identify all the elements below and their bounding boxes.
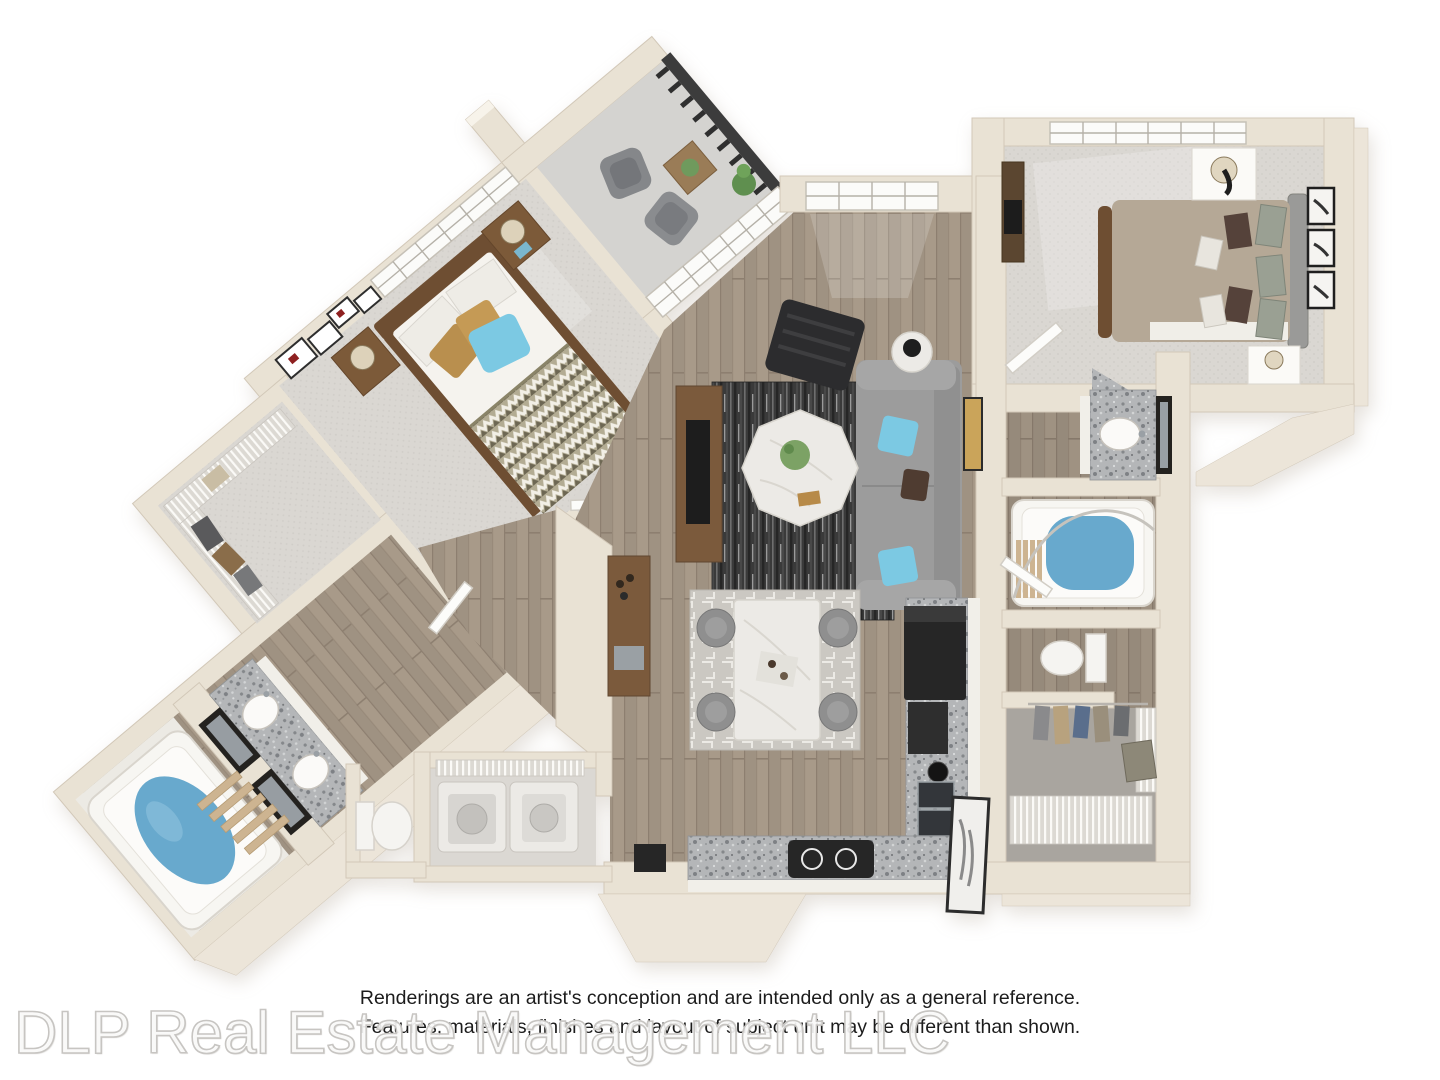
toilet-master <box>356 802 412 850</box>
bedroom-art-frames <box>1308 188 1334 308</box>
bath-divider-3 <box>1002 692 1114 708</box>
bedroom-media-unit <box>1002 162 1024 262</box>
bath-divider-2 <box>1002 610 1160 628</box>
bedroom-south-apron <box>1196 404 1354 486</box>
toilet-nook-wall-2 <box>346 862 426 878</box>
decor-plate <box>928 762 948 782</box>
laundry-shelf <box>436 760 584 776</box>
dining-west-wall <box>556 506 612 772</box>
sink-basin-2 <box>918 810 954 836</box>
second-nightstand-2 <box>1248 346 1300 384</box>
wall-painting <box>964 398 982 470</box>
suitcase <box>1122 740 1157 782</box>
blue-pillow-1 <box>877 415 920 458</box>
tv-console <box>676 386 722 562</box>
wire-shelf <box>1010 796 1152 844</box>
floorplan-svg <box>0 0 1440 1080</box>
bottom-right-apron <box>1002 894 1190 906</box>
floorplan-page: Renderings are an artist's conception an… <box>0 0 1440 1080</box>
east-apron <box>1354 128 1368 406</box>
second-bedroom-window <box>1050 122 1246 144</box>
floorplan-rendering <box>0 0 1440 1080</box>
blue-pillow-2 <box>877 545 919 587</box>
apartment-plan <box>0 0 1368 990</box>
leaning-art-frame <box>947 797 989 913</box>
living-window <box>806 182 938 210</box>
bath-divider-1 <box>1002 478 1160 496</box>
second-nightstand <box>1192 148 1256 200</box>
living-east-wall <box>976 176 1006 888</box>
buffet-console <box>608 556 650 696</box>
sink-basin-1 <box>918 782 954 808</box>
second-bath-tub <box>1012 500 1154 606</box>
coffee-maker <box>634 844 666 872</box>
side-table-north <box>892 332 932 372</box>
watermark: DLP Real Estate Management LLC <box>14 998 950 1067</box>
tv <box>686 420 710 524</box>
laundry-room <box>436 760 584 852</box>
wall-oven <box>908 702 948 754</box>
table-plant <box>780 440 810 470</box>
second-bed <box>1098 194 1308 348</box>
bottom-apron <box>598 894 806 962</box>
coffee-table <box>742 410 858 526</box>
cooktop <box>788 840 874 878</box>
dining-table <box>734 600 820 740</box>
table-lamp <box>903 339 921 357</box>
sofa <box>856 360 962 610</box>
brown-pillow <box>900 468 930 501</box>
